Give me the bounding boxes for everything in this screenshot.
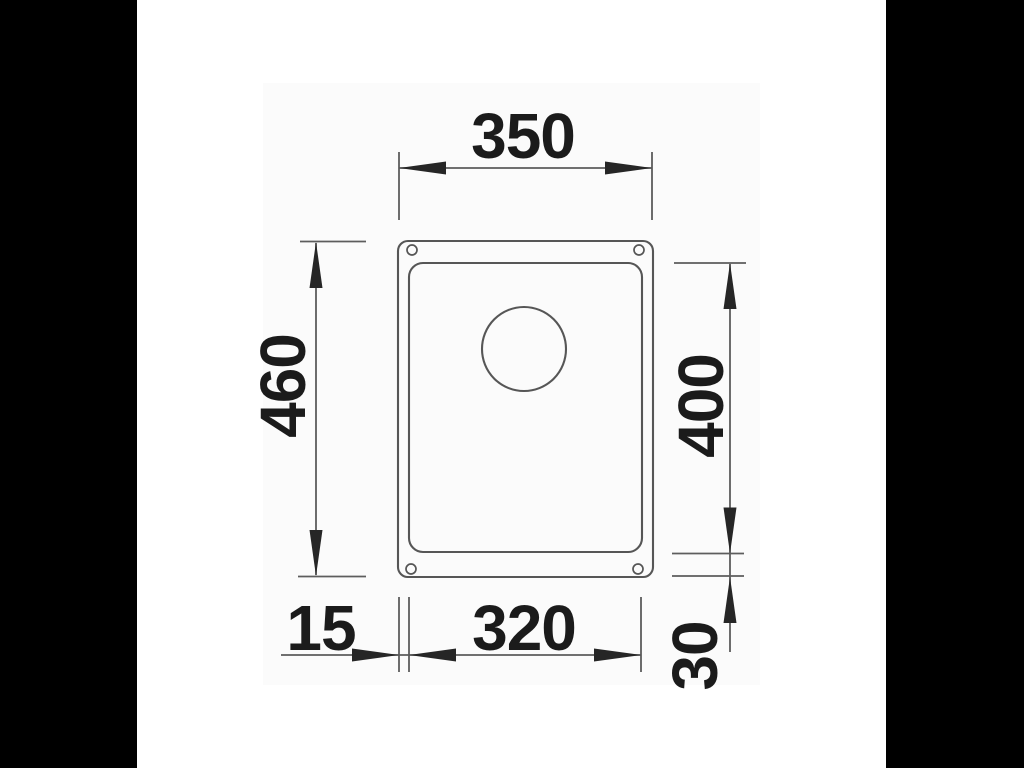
dim-label-overall-width: 350 — [471, 100, 575, 172]
screenshot-stage: 350 460 400 30 15 3 — [0, 0, 1024, 768]
dim-label-overall-depth: 460 — [247, 334, 319, 438]
dim-label-rim-bottom: 30 — [659, 621, 731, 690]
dim-label-rim-left: 15 — [286, 592, 355, 664]
technical-drawing: 350 460 400 30 15 3 — [0, 0, 1024, 768]
dim-label-bowl-width: 320 — [472, 592, 576, 664]
dim-label-bowl-depth: 400 — [665, 354, 737, 458]
